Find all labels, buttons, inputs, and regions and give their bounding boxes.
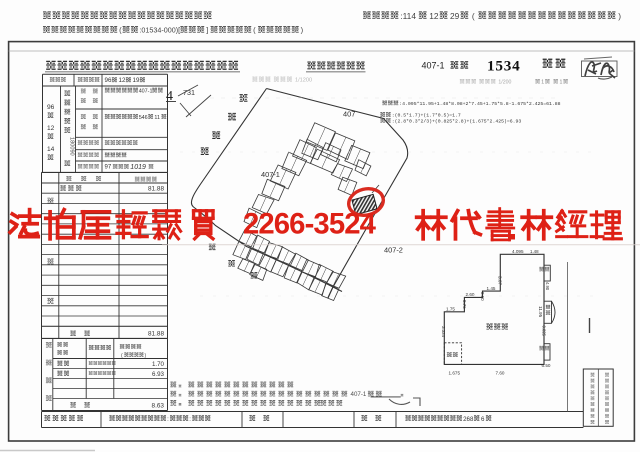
svg-text:1.675: 1.675 bbox=[449, 371, 461, 376]
svg-text:1.45: 1.45 bbox=[487, 286, 496, 291]
svg-text:407-1: 407-1 bbox=[139, 88, 153, 94]
svg-text:12: 12 bbox=[47, 125, 55, 132]
svg-text:8.63: 8.63 bbox=[152, 402, 165, 409]
svg-text:19: 19 bbox=[133, 77, 140, 84]
svg-text:1.70: 1.70 bbox=[152, 361, 165, 368]
svg-text:407-1: 407-1 bbox=[351, 391, 367, 398]
svg-text::(0.5*1.7)+(1.7*0.5)=1.7: :(0.5*1.7)+(1.7*0.5)=1.7 bbox=[392, 113, 461, 119]
svg-text:1: 1 bbox=[541, 79, 544, 85]
svg-text:731: 731 bbox=[183, 88, 195, 97]
svg-text:81.88: 81.88 bbox=[148, 186, 164, 193]
svg-text:(: ( bbox=[472, 11, 475, 21]
svg-text:11: 11 bbox=[154, 115, 160, 121]
svg-text:): ) bbox=[618, 11, 621, 21]
svg-text::(2.8*0.3*2/3)+(0.825*2.8)+(1.: :(2.8*0.3*2/3)+(0.825*2.8)+(1.675*2.425)… bbox=[392, 118, 522, 124]
svg-text:29: 29 bbox=[450, 11, 460, 21]
svg-text:11.95: 11.95 bbox=[538, 306, 543, 318]
svg-text:1019: 1019 bbox=[130, 164, 146, 171]
svg-text:7.60: 7.60 bbox=[496, 371, 505, 376]
svg-text:97: 97 bbox=[105, 164, 112, 170]
svg-text:546: 546 bbox=[139, 115, 148, 121]
svg-text:0.60: 0.60 bbox=[480, 292, 485, 301]
svg-text:1534: 1534 bbox=[487, 58, 521, 75]
svg-text:180090: 180090 bbox=[68, 137, 74, 156]
svg-text:1.48: 1.48 bbox=[530, 249, 539, 254]
svg-text:268: 268 bbox=[463, 416, 474, 423]
svg-text:6.93: 6.93 bbox=[152, 371, 165, 378]
svg-text:1/200: 1/200 bbox=[498, 79, 511, 85]
svg-text:4.095: 4.095 bbox=[512, 249, 524, 254]
svg-text::01534-000)[: :01534-000)[ bbox=[139, 25, 180, 34]
svg-text:1.75: 1.75 bbox=[446, 307, 455, 312]
svg-text:2266-3524: 2266-3524 bbox=[243, 208, 377, 241]
svg-text:12: 12 bbox=[119, 77, 126, 84]
svg-text:12: 12 bbox=[429, 11, 439, 21]
svg-text:407-1: 407-1 bbox=[422, 61, 445, 71]
svg-text:96: 96 bbox=[47, 104, 55, 111]
svg-text:0.825: 0.825 bbox=[542, 326, 547, 337]
svg-text::114: :114 bbox=[400, 11, 416, 21]
svg-text:407-2: 407-2 bbox=[384, 246, 403, 255]
svg-text:3.324: 3.324 bbox=[441, 326, 446, 338]
svg-text:0.76: 0.76 bbox=[462, 300, 467, 309]
svg-text::4.095*11.95+1.48*8.08+2*7.45+: :4.095*11.95+1.48*8.08+2*7.45+1.75*5.8-1… bbox=[399, 101, 560, 107]
svg-text:6.50: 6.50 bbox=[542, 363, 551, 368]
svg-text:96: 96 bbox=[105, 77, 112, 84]
svg-text:407: 407 bbox=[343, 110, 355, 119]
svg-text:4.90: 4.90 bbox=[545, 282, 550, 291]
svg-text:1/1200: 1/1200 bbox=[295, 78, 312, 84]
svg-text:1: 1 bbox=[560, 79, 563, 85]
svg-text:6: 6 bbox=[481, 416, 485, 423]
svg-text:3.67: 3.67 bbox=[498, 276, 503, 285]
svg-text:]: ] bbox=[206, 26, 208, 35]
svg-text:407-1: 407-1 bbox=[261, 170, 280, 179]
svg-text:81.88: 81.88 bbox=[148, 330, 164, 337]
svg-text:14: 14 bbox=[47, 146, 55, 153]
